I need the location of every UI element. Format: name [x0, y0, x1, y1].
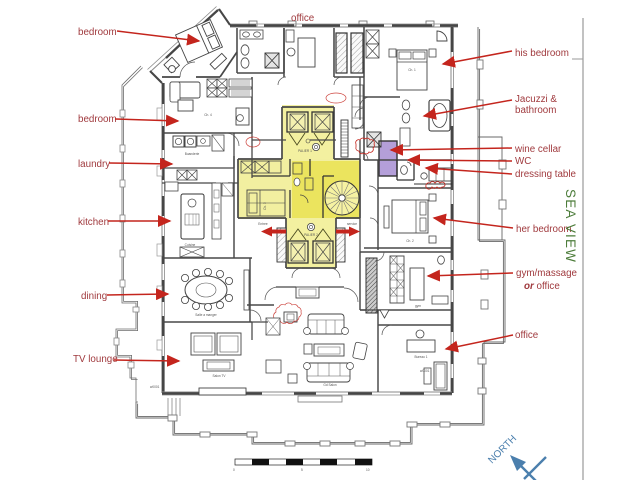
svg-text:kitchen: kitchen [78, 217, 109, 228]
svg-text:WC: WC [515, 156, 531, 167]
svg-text:gym/massage: gym/massage [516, 268, 578, 279]
svg-text:Salon TV: Salon TV [212, 374, 226, 378]
svg-text:Ch. 3: Ch. 3 [263, 202, 267, 210]
svg-text:dressing table: dressing table [515, 169, 577, 180]
svg-text:w0001: w0001 [420, 369, 430, 373]
svg-text:laundry: laundry [78, 159, 110, 170]
svg-text:Ch. 1: Ch. 1 [408, 68, 416, 72]
svg-text:10: 10 [366, 468, 370, 472]
svg-text:SEA VIEW: SEA VIEW [563, 189, 578, 263]
svg-text:office: office [291, 13, 315, 24]
svg-text:Salle a manger: Salle a manger [195, 313, 217, 317]
svg-text:dining: dining [81, 291, 107, 302]
svg-text:bedroom: bedroom [78, 27, 117, 38]
svg-text:office: office [515, 330, 539, 341]
svg-text:PALIER 2: PALIER 2 [304, 233, 318, 237]
svg-text:Jacuzzi &: Jacuzzi & [515, 94, 557, 105]
svg-text:his bedroom: his bedroom [515, 48, 569, 59]
svg-text:Ch. 4: Ch. 4 [204, 113, 212, 117]
svg-text:wine cellar: wine cellar [514, 144, 562, 155]
svg-text:Cuisine: Cuisine [185, 243, 196, 247]
svg-text:gym: gym [415, 304, 421, 308]
svg-text:Ch. 2: Ch. 2 [406, 239, 414, 243]
svg-text:service: service [347, 222, 357, 226]
svg-text:bathroom: bathroom [515, 105, 556, 116]
svg-text:Entree: Entree [258, 222, 268, 226]
svg-text:or office: or office [524, 281, 560, 292]
svg-text:Gd Salon: Gd Salon [323, 383, 337, 387]
svg-text:Bureau 1: Bureau 1 [415, 355, 428, 359]
svg-text:w0001: w0001 [150, 385, 160, 389]
svg-text:0: 0 [233, 468, 235, 472]
svg-text:TV lounge: TV lounge [73, 354, 118, 365]
svg-text:bedroom: bedroom [78, 114, 117, 125]
svg-text:5: 5 [301, 468, 303, 472]
svg-text:Buanderie: Buanderie [185, 152, 200, 156]
svg-text:PALIER 1: PALIER 1 [298, 149, 312, 153]
